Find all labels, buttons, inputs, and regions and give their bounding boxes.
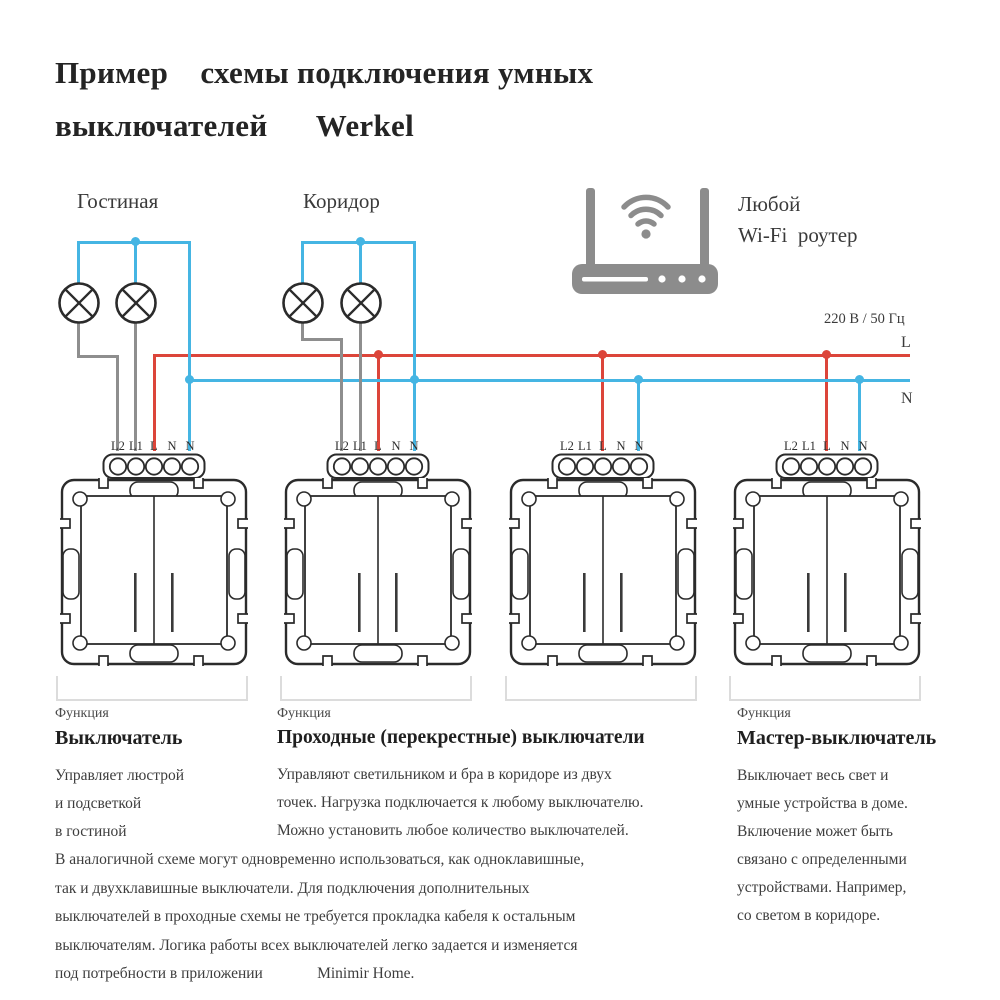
rocker-indicator	[807, 573, 810, 632]
caption-eyebrow: Функция	[55, 706, 275, 722]
terminal-label: L	[818, 439, 836, 454]
caption-body: Управляют светильником и бра в коридоре …	[277, 761, 697, 845]
wire-neutral-lamp2	[134, 241, 137, 285]
wire-load-lamp3-c	[340, 338, 343, 451]
terminal-label: L2	[109, 439, 127, 454]
screw-hole	[522, 636, 536, 650]
wire-load-lamp1-a	[77, 321, 80, 358]
screw-hole	[221, 492, 235, 506]
caption-eyebrow: Функция	[277, 706, 697, 722]
wire-live-drop-switch3	[601, 354, 604, 451]
terminal-block	[551, 453, 655, 480]
junction-dot	[822, 350, 831, 359]
switch-underline-bracket	[56, 676, 248, 701]
wire-neutral-lamp4	[359, 241, 362, 285]
screw-hole	[670, 492, 684, 506]
screw-hole	[73, 636, 87, 650]
wire-load-lamp3-b	[301, 338, 343, 341]
junction-dot	[356, 237, 365, 246]
screw-hole	[445, 492, 459, 506]
switch-underline-bracket	[729, 676, 921, 701]
screw-hole	[894, 636, 908, 650]
switch-body	[59, 477, 249, 669]
terminal-label: N	[630, 439, 648, 454]
terminal-label: L1	[351, 439, 369, 454]
junction-dot	[598, 350, 607, 359]
screw-hole	[73, 492, 87, 506]
switch-underline-bracket	[505, 676, 697, 701]
terminal-label: L2	[782, 439, 800, 454]
wire-live-drop-switch4	[825, 354, 828, 451]
screw-hole	[894, 492, 908, 506]
caption-master-switch: Функция Мастер-выключатель Выключает вес…	[737, 706, 952, 930]
wire-load-lamp1-b	[77, 355, 119, 358]
lamp-icon	[338, 280, 384, 326]
caption-pass-through-switches: Функция Проходные (перекрестные) выключа…	[277, 706, 697, 845]
lamp-icon	[56, 280, 102, 326]
screw-hole	[522, 492, 536, 506]
terminal-label: N	[163, 439, 181, 454]
screw-hole	[746, 492, 760, 506]
switch-body	[508, 477, 698, 669]
rocker-indicator	[134, 573, 137, 632]
junction-dot	[634, 375, 643, 384]
junction-dot	[855, 375, 864, 384]
screw-hole	[297, 492, 311, 506]
terminal-label: L	[369, 439, 387, 454]
screw-hole	[297, 636, 311, 650]
screw-hole	[445, 636, 459, 650]
wire-live-drop-switch2	[377, 354, 380, 451]
lamp-icon	[280, 280, 326, 326]
caption-title: Выключатель	[55, 727, 275, 750]
rocker-indicator	[583, 573, 586, 632]
wire-neutral-lamp1	[77, 241, 80, 285]
junction-dot	[374, 350, 383, 359]
caption-title: Проходные (перекрестные) выключатели	[277, 727, 697, 749]
wire-load-lamp2	[134, 321, 137, 451]
switch-living-room: L2 L1 L N N	[56, 438, 252, 704]
terminal-labels: L2 L1 L N N	[333, 439, 423, 454]
caption-title: Мастер-выключатель	[737, 727, 952, 750]
terminal-label: N	[405, 439, 423, 454]
terminal-label: L1	[800, 439, 818, 454]
terminal-labels: L2 L1 L N N	[558, 439, 648, 454]
switch-underline-bracket	[280, 676, 472, 701]
wire-load-lamp4	[359, 321, 362, 451]
caption-body: Управляет люстрой и подсветкой в гостино…	[55, 762, 275, 846]
terminal-block	[326, 453, 430, 480]
wire-live-drop-switch1	[153, 354, 156, 451]
screw-hole	[221, 636, 235, 650]
wire-neutral-lamp3	[301, 241, 304, 285]
rocker-indicator	[171, 573, 174, 632]
terminal-label: L1	[576, 439, 594, 454]
terminal-block	[775, 453, 879, 480]
terminal-label: N	[836, 439, 854, 454]
terminal-label: L1	[127, 439, 145, 454]
terminal-label: L	[594, 439, 612, 454]
terminal-label: L	[145, 439, 163, 454]
lamp-icon	[113, 280, 159, 326]
wire-neutral-bus	[188, 379, 910, 382]
switch-master: L2 L1 L N N	[729, 438, 925, 704]
terminal-label: L2	[333, 439, 351, 454]
caption-body: Выключает весь свет и умные устройства в…	[737, 762, 952, 930]
terminal-block	[102, 453, 206, 480]
terminal-label: L2	[558, 439, 576, 454]
switch-body	[283, 477, 473, 669]
wire-load-lamp1-c	[116, 355, 119, 451]
switch-corridor-2: L2 L1 L N N	[505, 438, 701, 704]
wire-live-bus	[153, 354, 910, 357]
terminal-label: N	[612, 439, 630, 454]
wire-neutral-drop-switch2	[413, 241, 416, 451]
junction-dot	[185, 375, 194, 384]
rocker-indicator	[358, 573, 361, 632]
junction-dot	[131, 237, 140, 246]
footer-note: В аналогичной схеме могут одновременно и…	[55, 846, 695, 989]
rocker-indicator	[395, 573, 398, 632]
rocker-indicator	[844, 573, 847, 632]
caption-switch: Функция Выключатель Управляет люстрой и …	[55, 706, 275, 846]
screw-hole	[670, 636, 684, 650]
wiring-diagram-page: Пример схемы подключения умных выключате…	[0, 0, 1000, 1000]
terminal-label: N	[854, 439, 872, 454]
caption-eyebrow: Функция	[737, 706, 952, 722]
terminal-label: N	[181, 439, 199, 454]
wire-neutral-drop-switch1	[188, 241, 191, 451]
terminal-labels: L2 L1 L N N	[782, 439, 872, 454]
rocker-indicator	[620, 573, 623, 632]
terminal-labels: L2 L1 L N N	[109, 439, 199, 454]
screw-hole	[746, 636, 760, 650]
junction-dot	[410, 375, 419, 384]
terminal-label: N	[387, 439, 405, 454]
switch-corridor-1: L2 L1 L N N	[280, 438, 476, 704]
switch-body	[732, 477, 922, 669]
